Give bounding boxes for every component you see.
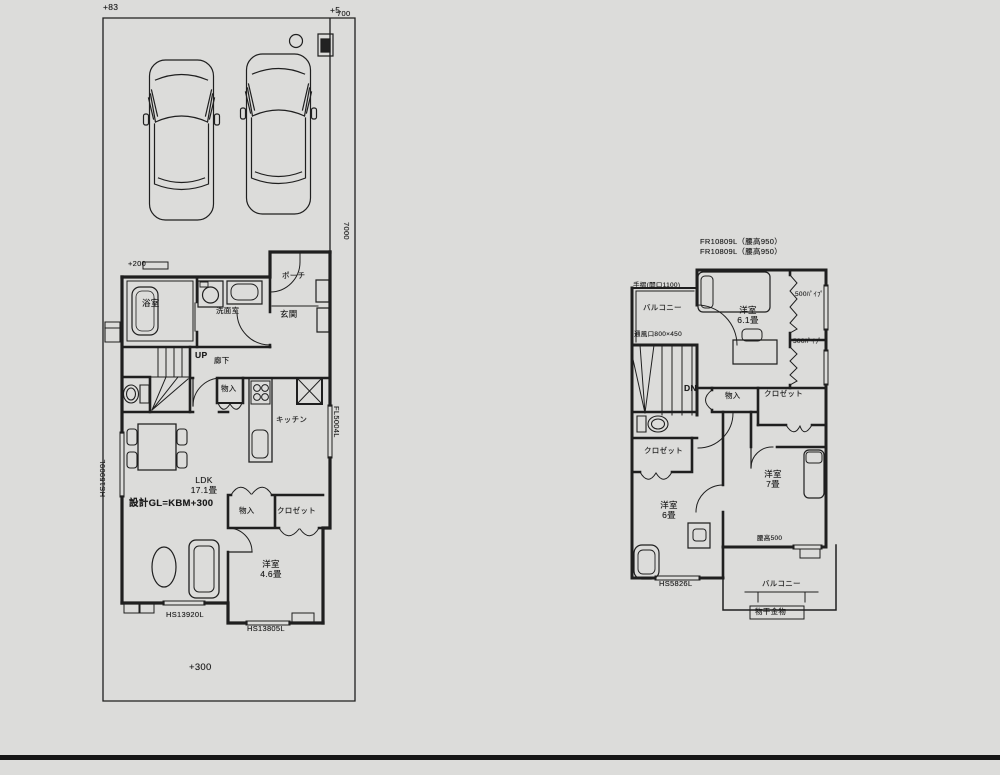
room-label-closet-2f-1: クロゼット <box>764 390 803 399</box>
room-label-storage-ldk: 物入 <box>239 507 255 516</box>
bathtub-icon <box>127 281 193 341</box>
utility-circle-icon <box>290 35 303 48</box>
window-note-1: FR10809L（腰高950） <box>700 238 782 247</box>
stairs-up-icon <box>150 347 190 412</box>
window-label-hs13920l: HS13920L <box>166 611 204 620</box>
room-label-bedroom-6-1: 洋室 6.1畳 <box>727 306 769 326</box>
room-label-closet: クロゼット <box>277 507 316 516</box>
toilet-icon <box>637 416 668 432</box>
meter-box-icon <box>318 34 333 56</box>
window-marks-2f <box>655 285 828 580</box>
room-label-hall: 廊下 <box>214 357 230 366</box>
car-icon <box>144 60 220 220</box>
storage-doors <box>217 403 243 409</box>
window-note-2: FR10809L（腰高950） <box>700 248 782 257</box>
room-label-bedroom-6: 洋室 6畳 <box>653 501 685 521</box>
sill-note: 腰高500 <box>757 535 782 542</box>
room-label-storage-hall: 物入 <box>221 385 237 394</box>
laundry-hanger-label: 物干金物 <box>755 608 786 617</box>
room-label-bath: 浴室 <box>142 299 160 309</box>
vent-note: 通風口800×450 <box>634 331 682 338</box>
kitchen-counter-icon <box>249 378 272 462</box>
site-level-note: +300 <box>189 663 212 674</box>
handrail-note: 手摺(開口1100) <box>633 282 680 289</box>
stairs-down-label: DN <box>684 384 697 394</box>
porch-step <box>143 262 168 269</box>
refrigerator-icon <box>297 378 322 404</box>
balcony-bottom-outline <box>723 545 836 610</box>
car-icon <box>241 54 317 214</box>
window-label-hs5826l: HS5826L <box>659 580 692 589</box>
desk-icon <box>688 523 710 548</box>
stairs-down-icon <box>632 345 692 415</box>
stairs-up-label: UP <box>195 351 207 361</box>
room-label-balcony-bottom: バルコニー <box>762 580 801 589</box>
room-label-kitchen: キッチン <box>276 416 307 425</box>
dining-table-icon <box>127 424 187 470</box>
room-label-porch: ポーチ <box>282 272 305 281</box>
closet-pipe-label-1: 500ﾊﾟｲﾌﾟ <box>795 291 824 298</box>
bedroom-door-arc <box>228 528 252 552</box>
window-label-hs15909l: HS15909L <box>99 459 108 497</box>
window-label-hs13805l: HS13805L <box>247 625 285 634</box>
room-label-storage-2f: 物入 <box>725 392 741 401</box>
water-heater-icon <box>105 322 120 342</box>
toilet-icon <box>124 385 150 403</box>
washbasin-icon <box>227 281 262 304</box>
room-label-balcony-top: バルコニー <box>643 304 682 313</box>
design-gl-note: 設計GL=KBM+300 <box>129 499 213 510</box>
bench-mark-label: +200 <box>128 260 146 269</box>
scan-edge-artifact <box>0 755 1000 760</box>
room-label-bedroom-4-6: 洋室 4.6畳 <box>250 560 292 580</box>
room-label-ldk: LDK 17.1畳 <box>183 476 225 496</box>
bed-icon <box>804 450 824 498</box>
sofa-icon <box>189 540 219 598</box>
window-label-fl5004l: FL5004L <box>331 406 340 438</box>
site-dim-depth: 7000 <box>341 222 350 240</box>
floorplan-scan-page: +83 +5 700 7000 +200 設計GL=KBM+300 +300 浴… <box>0 0 1000 775</box>
site-dim-left: +83 <box>103 3 118 13</box>
entrance-hall-door-arc <box>237 312 270 345</box>
room-label-closet-2f-2: クロゼット <box>644 447 683 456</box>
door-arcs-2f <box>696 413 773 512</box>
room-label-bedroom-7: 洋室 7畳 <box>757 470 789 490</box>
site-dim-width: 700 <box>337 10 350 19</box>
closet-pipe-label-2: 500ﾊﾟｲﾌﾟ <box>793 338 822 345</box>
room-label-entrance: 玄関 <box>280 310 298 320</box>
washing-machine-icon <box>198 281 223 307</box>
desk-icon <box>733 329 777 364</box>
coffee-table-icon <box>152 547 176 587</box>
room-label-washroom: 洗面室 <box>216 307 239 316</box>
floor1-drawing <box>90 0 380 760</box>
bed-icon <box>634 545 659 579</box>
